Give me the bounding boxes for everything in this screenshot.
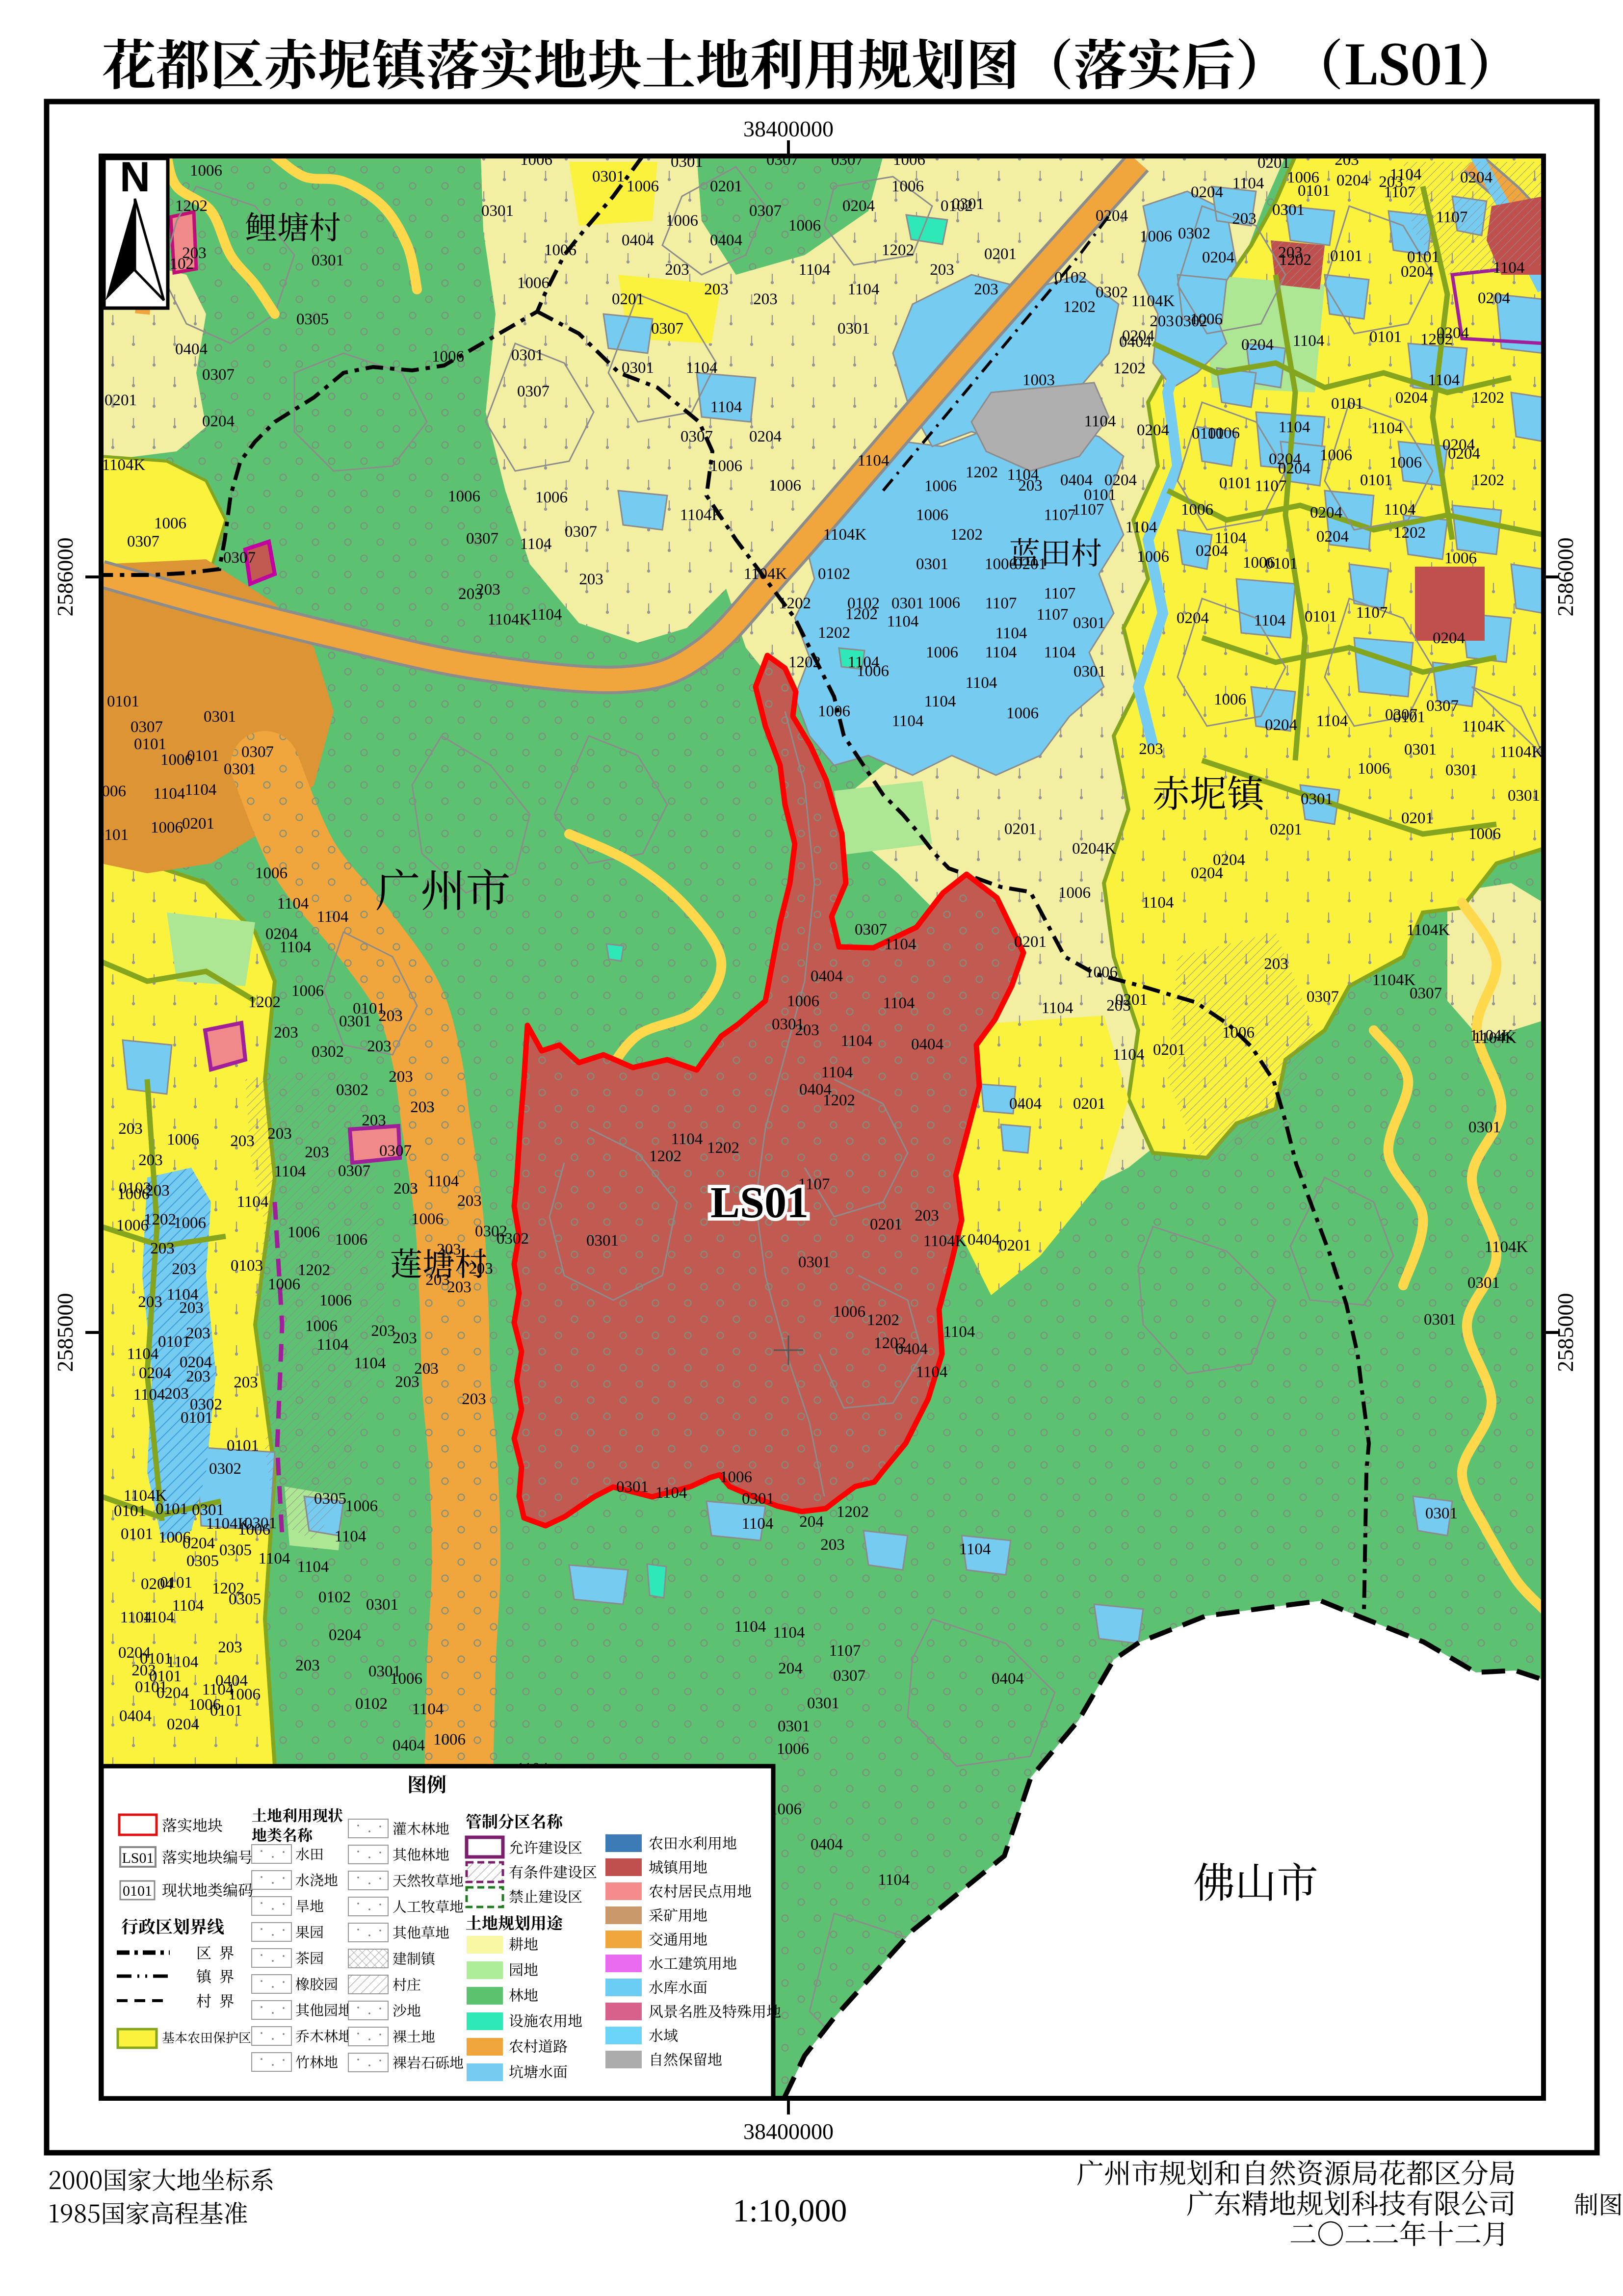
- svg-text:1107: 1107: [1044, 585, 1076, 602]
- svg-text:0307: 0307: [1426, 697, 1459, 715]
- svg-text:1202: 1202: [175, 197, 208, 215]
- svg-text:0102: 0102: [941, 197, 973, 215]
- svg-text:0301: 0301: [511, 346, 544, 364]
- svg-text:0305: 0305: [219, 1541, 252, 1559]
- svg-text:1202: 1202: [248, 993, 281, 1011]
- svg-text:0404: 0404: [811, 967, 843, 985]
- svg-text:1104: 1104: [883, 994, 915, 1012]
- svg-text:1104: 1104: [1293, 332, 1325, 350]
- svg-text:0404: 0404: [895, 1340, 928, 1358]
- svg-text:0204: 0204: [167, 1716, 199, 1733]
- svg-text:0204: 0204: [1177, 609, 1209, 627]
- svg-text:1104: 1104: [892, 712, 924, 730]
- svg-text:203: 203: [410, 1098, 435, 1116]
- svg-text:203: 203: [393, 1180, 418, 1198]
- svg-text:0204: 0204: [1269, 450, 1301, 468]
- svg-text:1104K: 1104K: [1407, 921, 1450, 939]
- svg-text:0404: 0404: [992, 1670, 1024, 1688]
- svg-text:0204: 0204: [1460, 169, 1492, 186]
- svg-text:0307: 0307: [127, 533, 159, 550]
- svg-text:203: 203: [753, 290, 778, 308]
- svg-text:203: 203: [186, 1368, 210, 1385]
- svg-text:0204: 0204: [1401, 263, 1433, 281]
- svg-text:1006: 1006: [924, 477, 957, 495]
- svg-text:1104: 1104: [841, 1032, 873, 1050]
- svg-text:1104: 1104: [858, 452, 890, 470]
- svg-text:0307: 0307: [379, 1142, 412, 1160]
- svg-text:0307: 0307: [565, 523, 597, 541]
- svg-text:1006: 1006: [1181, 501, 1213, 519]
- svg-text:1104: 1104: [1254, 612, 1286, 629]
- svg-text:0201: 0201: [984, 245, 1017, 263]
- svg-text:1107: 1107: [1436, 209, 1468, 226]
- svg-text:1006: 1006: [833, 1303, 865, 1321]
- svg-text:203: 203: [704, 281, 729, 298]
- svg-text:0201: 0201: [1073, 1095, 1105, 1113]
- svg-text:0204: 0204: [842, 197, 875, 215]
- svg-text:0204: 0204: [202, 413, 235, 430]
- svg-text:0404: 0404: [622, 232, 654, 249]
- svg-text:1006: 1006: [535, 489, 568, 506]
- svg-text:0301: 0301: [1404, 741, 1437, 758]
- svg-text:1104: 1104: [277, 895, 309, 913]
- svg-text:1104: 1104: [943, 1323, 975, 1341]
- svg-text:203: 203: [295, 1657, 320, 1674]
- svg-text:0404: 0404: [1009, 1095, 1042, 1113]
- svg-text:1104: 1104: [317, 1336, 349, 1354]
- svg-text:1006: 1006: [117, 1185, 150, 1203]
- svg-text:2586000: 2586000: [52, 538, 78, 617]
- svg-text:1104K: 1104K: [1500, 743, 1544, 761]
- svg-text:0101: 0101: [160, 1574, 192, 1592]
- svg-text:0204: 0204: [1395, 389, 1428, 407]
- svg-text:1104: 1104: [1371, 419, 1403, 437]
- svg-text:1006: 1006: [448, 488, 480, 505]
- svg-text:1006: 1006: [720, 1468, 752, 1486]
- svg-text:1104: 1104: [297, 1558, 329, 1576]
- svg-text:1104K: 1104K: [102, 456, 146, 474]
- svg-text:0101: 0101: [181, 1409, 213, 1427]
- svg-text:203: 203: [267, 1125, 292, 1143]
- svg-text:203: 203: [458, 585, 483, 603]
- svg-text:0301: 0301: [778, 1718, 810, 1735]
- svg-text:0307: 0307: [466, 530, 498, 548]
- svg-text:203: 203: [447, 1278, 471, 1296]
- svg-text:0301: 0301: [1425, 1505, 1458, 1522]
- svg-text:1202: 1202: [1063, 298, 1096, 316]
- svg-text:1104K: 1104K: [1473, 1029, 1517, 1047]
- svg-text:203: 203: [457, 1192, 482, 1210]
- svg-text:1104K: 1104K: [1462, 718, 1506, 735]
- svg-text:1104K: 1104K: [488, 611, 531, 628]
- svg-text:1107: 1107: [1073, 501, 1104, 519]
- svg-text:0101: 0101: [158, 1333, 190, 1351]
- svg-text:1104: 1104: [742, 1515, 774, 1533]
- svg-text:1104: 1104: [1007, 466, 1039, 484]
- svg-text:0301: 0301: [1424, 1311, 1456, 1329]
- svg-text:1006: 1006: [1085, 964, 1118, 981]
- svg-text:1104: 1104: [1384, 501, 1416, 519]
- svg-text:203: 203: [1232, 210, 1257, 228]
- svg-text:1202: 1202: [707, 1139, 739, 1157]
- svg-text:0101: 0101: [1192, 425, 1224, 443]
- svg-text:1006: 1006: [335, 1231, 367, 1249]
- svg-text:1104: 1104: [427, 1173, 459, 1190]
- svg-text:1104: 1104: [671, 1130, 703, 1148]
- svg-text:1202: 1202: [1472, 471, 1504, 489]
- svg-text:203: 203: [218, 1639, 242, 1656]
- svg-text:0201: 0201: [1004, 820, 1037, 838]
- svg-text:1006: 1006: [1358, 760, 1390, 778]
- svg-text:0201: 0201: [612, 290, 644, 308]
- svg-text:0301: 0301: [592, 168, 625, 185]
- svg-text:1006: 1006: [288, 1224, 320, 1241]
- svg-text:1104K: 1104K: [923, 1232, 967, 1250]
- svg-text:1006: 1006: [1137, 548, 1169, 566]
- svg-text:1104K: 1104K: [823, 526, 867, 544]
- svg-text:203: 203: [172, 1260, 196, 1278]
- svg-text:1006: 1006: [1320, 446, 1352, 464]
- svg-text:1104: 1104: [530, 606, 562, 624]
- svg-text:0301: 0301: [622, 359, 654, 377]
- svg-text:1006: 1006: [916, 506, 948, 524]
- svg-text:0204: 0204: [749, 428, 782, 445]
- svg-text:0204: 0204: [183, 1535, 215, 1552]
- svg-text:0101: 0101: [227, 1437, 259, 1455]
- svg-text:1006: 1006: [1389, 454, 1422, 471]
- svg-text:1104K: 1104K: [744, 565, 787, 583]
- svg-text:1006: 1006: [167, 1131, 199, 1148]
- svg-text:1006: 1006: [928, 594, 960, 612]
- svg-text:0204: 0204: [1433, 629, 1465, 647]
- svg-text:203: 203: [164, 1385, 189, 1403]
- svg-text:0404: 0404: [215, 1672, 248, 1690]
- svg-text:0302: 0302: [312, 1043, 344, 1061]
- svg-text:1104: 1104: [1042, 999, 1073, 1017]
- svg-text:203: 203: [820, 1536, 845, 1554]
- svg-text:0301: 0301: [807, 1695, 839, 1712]
- svg-text:0404: 0404: [968, 1231, 1000, 1249]
- svg-text:1006: 1006: [432, 348, 464, 365]
- svg-text:0204: 0204: [1316, 528, 1349, 546]
- svg-text:0201: 0201: [1014, 555, 1047, 573]
- svg-text:203: 203: [182, 244, 207, 262]
- svg-text:1006: 1006: [818, 703, 850, 720]
- svg-text:0301: 0301: [742, 1490, 774, 1508]
- svg-text:0302: 0302: [209, 1460, 241, 1478]
- svg-text:0404: 0404: [710, 232, 742, 249]
- svg-text:203: 203: [665, 261, 689, 279]
- svg-text:0301: 0301: [616, 1478, 649, 1496]
- svg-text:0101: 0101: [1369, 328, 1402, 346]
- svg-text:0101: 0101: [187, 747, 219, 765]
- svg-text:38400000: 38400000: [743, 2119, 834, 2144]
- svg-text:203: 203: [395, 1373, 419, 1391]
- svg-text:1104: 1104: [335, 1528, 366, 1545]
- svg-text:0101: 0101: [1331, 395, 1363, 413]
- svg-text:1006: 1006: [174, 1214, 206, 1232]
- svg-text:0101: 0101: [1330, 247, 1362, 265]
- svg-text:0101: 0101: [1360, 471, 1392, 489]
- svg-text:0307: 0307: [202, 366, 235, 384]
- svg-text:1202: 1202: [882, 241, 914, 259]
- svg-text:203: 203: [915, 1207, 939, 1225]
- svg-text:1104: 1104: [1126, 519, 1157, 536]
- svg-text:1006: 1006: [666, 212, 698, 230]
- svg-text:1104K: 1104K: [680, 506, 724, 524]
- svg-text:1104: 1104: [959, 1540, 991, 1558]
- svg-text:1202: 1202: [867, 1311, 899, 1329]
- svg-text:203: 203: [138, 1151, 163, 1169]
- svg-text:204: 204: [799, 1513, 824, 1531]
- svg-text:0201: 0201: [870, 1216, 902, 1233]
- svg-text:1104: 1104: [848, 281, 880, 298]
- svg-text:1202: 1202: [837, 1503, 869, 1521]
- svg-text:1104: 1104: [354, 1355, 386, 1372]
- svg-text:0307: 0307: [749, 202, 782, 220]
- svg-text:0204: 0204: [1191, 183, 1223, 201]
- svg-text:1104: 1104: [887, 613, 919, 630]
- svg-text:0301: 0301: [891, 595, 924, 612]
- svg-text:0204: 0204: [1137, 421, 1169, 439]
- svg-text:1104: 1104: [280, 939, 312, 956]
- svg-text:0201: 0201: [1153, 1041, 1185, 1059]
- svg-text:1006: 1006: [151, 819, 183, 836]
- svg-text:1104: 1104: [734, 1618, 766, 1636]
- svg-text:0101: 0101: [123, 1883, 152, 1899]
- svg-text:0301: 0301: [916, 555, 948, 573]
- svg-text:1006: 1006: [1058, 884, 1091, 902]
- svg-text:0305: 0305: [296, 311, 329, 328]
- svg-text:203: 203: [305, 1144, 329, 1161]
- svg-text:2585000: 2585000: [52, 1293, 78, 1372]
- svg-text:0307: 0307: [681, 428, 713, 445]
- svg-text:1104: 1104: [412, 1700, 444, 1718]
- svg-text:0101: 0101: [210, 1702, 242, 1720]
- svg-text:1104: 1104: [127, 1345, 159, 1363]
- svg-text:0103: 0103: [231, 1257, 263, 1275]
- svg-text:1006: 1006: [345, 1497, 378, 1515]
- svg-text:1006: 1006: [1006, 704, 1039, 722]
- svg-text:0404: 0404: [811, 1836, 843, 1853]
- svg-text:0301: 0301: [1468, 1119, 1501, 1136]
- svg-text:1202: 1202: [966, 464, 998, 481]
- svg-text:1104: 1104: [172, 1597, 204, 1615]
- svg-text:LS01: LS01: [122, 1850, 154, 1866]
- svg-text:1006: 1006: [291, 982, 324, 1000]
- svg-text:0101: 0101: [121, 1525, 153, 1543]
- svg-text:1107: 1107: [1037, 606, 1069, 624]
- svg-text:0204: 0204: [1448, 445, 1480, 463]
- svg-text:1104: 1104: [885, 936, 916, 953]
- svg-text:0201: 0201: [1401, 809, 1434, 827]
- svg-text:1006: 1006: [433, 1731, 466, 1748]
- svg-text:0301: 0301: [481, 202, 514, 220]
- svg-text:0302: 0302: [1096, 284, 1128, 301]
- svg-text:0307: 0307: [338, 1162, 370, 1180]
- svg-text:1006: 1006: [926, 644, 958, 661]
- svg-text:2585000: 2585000: [1553, 1293, 1578, 1372]
- svg-text:1104: 1104: [924, 693, 956, 710]
- svg-text:0404: 0404: [911, 1036, 943, 1053]
- svg-text:1202: 1202: [1393, 524, 1426, 542]
- svg-text:1104: 1104: [1493, 259, 1525, 277]
- svg-text:0307: 0307: [131, 718, 163, 736]
- svg-text:1104: 1104: [655, 1484, 687, 1502]
- svg-text:1006: 1006: [857, 662, 889, 680]
- svg-text:1202: 1202: [1279, 251, 1311, 269]
- svg-text:0204: 0204: [1310, 504, 1342, 522]
- svg-text:1104: 1104: [1044, 644, 1076, 661]
- svg-text:1006: 1006: [710, 457, 742, 475]
- svg-text:0102: 0102: [318, 1589, 351, 1606]
- svg-text:0102: 0102: [355, 1695, 388, 1713]
- svg-text:0201: 0201: [1115, 991, 1148, 1009]
- svg-text:1006: 1006: [787, 992, 819, 1010]
- svg-text:1104: 1104: [237, 1193, 269, 1211]
- svg-text:203: 203: [462, 1390, 486, 1408]
- svg-text:1006: 1006: [238, 1521, 270, 1539]
- svg-text:0301: 0301: [1073, 614, 1105, 632]
- svg-text:1006: 1006: [1190, 311, 1223, 328]
- svg-text:203: 203: [150, 1240, 175, 1257]
- svg-text:1104: 1104: [520, 535, 552, 553]
- svg-text:1104: 1104: [120, 1609, 152, 1626]
- svg-text:0101: 0101: [1393, 708, 1425, 726]
- svg-text:0305: 0305: [314, 1490, 346, 1508]
- svg-text:0302: 0302: [1178, 225, 1210, 242]
- svg-text:2586000: 2586000: [1553, 538, 1578, 617]
- svg-text:203: 203: [118, 1120, 143, 1138]
- svg-text:0204: 0204: [1096, 207, 1128, 225]
- svg-text:0204: 0204: [1213, 851, 1245, 869]
- svg-text:1006: 1006: [1140, 228, 1172, 245]
- svg-text:203: 203: [367, 1038, 392, 1055]
- svg-text:0101: 0101: [114, 1502, 146, 1520]
- svg-text:0302: 0302: [497, 1230, 529, 1248]
- svg-text:1107: 1107: [1356, 604, 1388, 622]
- svg-text:1006: 1006: [411, 1210, 444, 1228]
- svg-text:1006: 1006: [544, 241, 576, 259]
- svg-text:203: 203: [579, 571, 603, 588]
- svg-text:1006: 1006: [891, 178, 924, 195]
- svg-text:0307: 0307: [223, 549, 256, 567]
- svg-text:1104: 1104: [1113, 1046, 1145, 1064]
- svg-text:203: 203: [138, 1293, 162, 1311]
- svg-text:1104: 1104: [878, 1871, 910, 1889]
- svg-text:1202: 1202: [1420, 331, 1453, 348]
- svg-text:1006: 1006: [627, 178, 659, 195]
- svg-text:203: 203: [930, 261, 954, 279]
- svg-text:1202: 1202: [779, 595, 811, 612]
- svg-text:0201: 0201: [1270, 821, 1302, 838]
- svg-text:203: 203: [1264, 955, 1288, 973]
- svg-text:1104: 1104: [185, 781, 217, 799]
- svg-text:1006: 1006: [390, 1670, 422, 1688]
- svg-text:1104: 1104: [995, 625, 1027, 642]
- svg-text:0307: 0307: [833, 1667, 865, 1685]
- svg-text:1104: 1104: [259, 1550, 290, 1567]
- svg-text:203: 203: [389, 1068, 413, 1086]
- svg-text:1107: 1107: [985, 595, 1017, 612]
- svg-text:1006: 1006: [517, 274, 550, 292]
- svg-text:1104: 1104: [710, 398, 742, 416]
- svg-text:1202: 1202: [298, 1261, 330, 1279]
- svg-text:0204: 0204: [1265, 716, 1297, 734]
- svg-text:0301: 0301: [204, 708, 236, 726]
- svg-text:0301: 0301: [586, 1232, 619, 1250]
- svg-text:1006: 1006: [255, 864, 288, 882]
- svg-text:203: 203: [234, 1374, 258, 1391]
- svg-text:0301: 0301: [224, 760, 256, 778]
- svg-text:1006: 1006: [305, 1317, 338, 1335]
- svg-text:0201: 0201: [182, 815, 214, 833]
- svg-text:0201: 0201: [1014, 933, 1047, 951]
- svg-text:1104: 1104: [985, 644, 1017, 661]
- svg-text:0201: 0201: [105, 391, 137, 409]
- svg-text:0204: 0204: [329, 1626, 361, 1644]
- svg-text:203: 203: [371, 1322, 395, 1340]
- svg-text:0301: 0301: [1508, 787, 1540, 805]
- svg-text:0404: 0404: [119, 1707, 152, 1725]
- svg-text:1104K: 1104K: [1485, 1238, 1528, 1256]
- svg-text:1202: 1202: [823, 1092, 855, 1109]
- svg-text:1006: 1006: [116, 1217, 149, 1234]
- svg-text:1104: 1104: [686, 359, 718, 377]
- svg-text:0404: 0404: [393, 1737, 425, 1754]
- svg-text:1202: 1202: [950, 526, 983, 544]
- svg-text:0307: 0307: [651, 320, 683, 338]
- svg-text:1104: 1104: [133, 1386, 165, 1404]
- svg-text:203: 203: [974, 281, 998, 298]
- svg-text:0204: 0204: [1478, 289, 1510, 307]
- svg-text:0101: 0101: [107, 693, 139, 710]
- svg-text:1006: 1006: [788, 217, 821, 235]
- svg-text:0204: 0204: [1104, 471, 1137, 489]
- svg-text:1104K: 1104K: [1131, 292, 1175, 310]
- svg-text:0204: 0204: [157, 1684, 189, 1702]
- svg-text:0204: 0204: [1241, 336, 1274, 354]
- svg-text:1202: 1202: [818, 624, 850, 642]
- svg-text:1006: 1006: [1468, 825, 1501, 843]
- svg-text:0301: 0301: [366, 1596, 398, 1614]
- svg-text:1006: 1006: [190, 162, 222, 180]
- svg-text:0301: 0301: [1445, 761, 1478, 779]
- svg-text:1107: 1107: [1255, 477, 1287, 495]
- svg-text:1202: 1202: [1472, 389, 1504, 407]
- svg-text:0307: 0307: [855, 921, 887, 939]
- svg-text:0101: 0101: [1219, 474, 1252, 492]
- svg-text:1006: 1006: [154, 515, 186, 532]
- svg-text:1104: 1104: [799, 261, 831, 279]
- svg-text:1104: 1104: [821, 1064, 853, 1081]
- svg-text:0305: 0305: [229, 1591, 261, 1608]
- svg-text:0301: 0301: [312, 252, 344, 269]
- svg-text:LS01: LS01: [710, 1178, 809, 1227]
- svg-text:0301: 0301: [798, 1253, 831, 1271]
- svg-text:0301: 0301: [1467, 1274, 1500, 1292]
- svg-text:0301: 0301: [1272, 201, 1305, 219]
- svg-text:0201: 0201: [999, 1237, 1031, 1254]
- svg-text:1107: 1107: [829, 1642, 861, 1660]
- svg-text:1006: 1006: [985, 555, 1017, 573]
- svg-text:1104: 1104: [317, 908, 349, 926]
- svg-text:0404: 0404: [175, 340, 208, 358]
- svg-text:0301: 0301: [1301, 790, 1333, 808]
- svg-text:203: 203: [795, 1021, 819, 1039]
- svg-text:1006: 1006: [1214, 691, 1246, 708]
- svg-text:1202: 1202: [1113, 360, 1146, 377]
